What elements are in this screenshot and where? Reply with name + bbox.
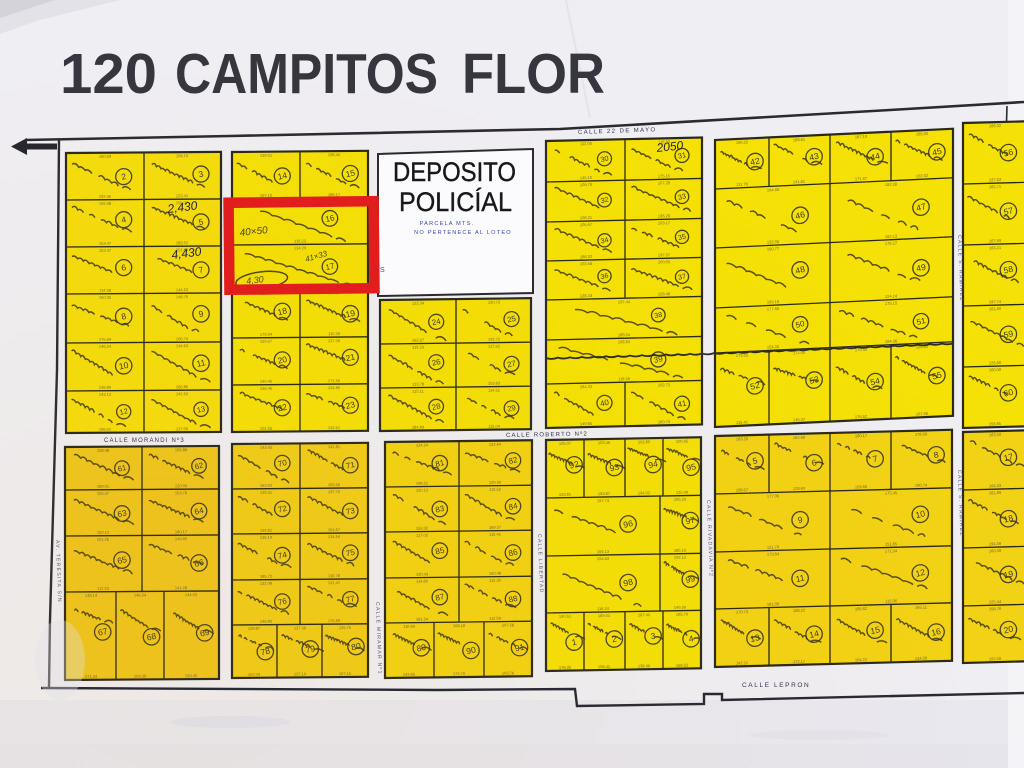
svg-text:PARCELA MTS.: PARCELA MTS. xyxy=(420,221,475,227)
svg-text:POLICÍAL: POLICÍAL xyxy=(399,187,512,217)
svg-text:CALLE ROBERTO Nº2: CALLE ROBERTO Nº2 xyxy=(506,431,588,439)
svg-text:S: S xyxy=(380,267,385,274)
svg-text:NO PERTENECE AL LOTEO: NO PERTENECE AL LOTEO xyxy=(414,230,512,236)
svg-text:2050: 2050 xyxy=(655,138,684,155)
svg-text:CALLE LEPRON: CALLE LEPRON xyxy=(742,682,810,689)
svg-text:CALLE MORANDI Nº3: CALLE MORANDI Nº3 xyxy=(104,437,185,444)
svg-text:DEPOSITO: DEPOSITO xyxy=(393,157,516,187)
